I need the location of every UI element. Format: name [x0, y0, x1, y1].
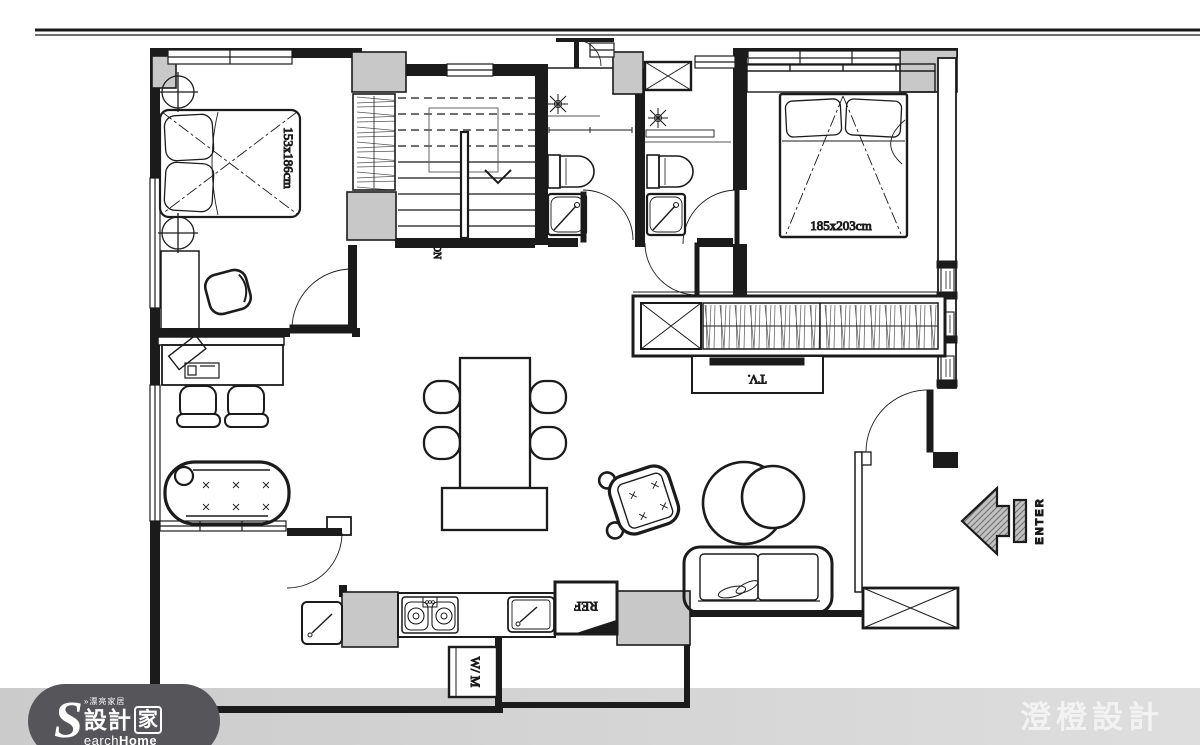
window-bedroom1-top — [168, 50, 292, 64]
designer-watermark: 澄橙設計 — [1020, 692, 1164, 737]
stair-handrail — [461, 132, 468, 238]
stairs-down-label: DN — [431, 245, 442, 259]
window-stair-top — [447, 64, 493, 76]
bed-185x203: 185x203cm — [780, 94, 907, 237]
window-vestibule — [590, 43, 614, 57]
logo-en-text: earchHome — [84, 734, 162, 745]
stairwell: DN — [398, 98, 535, 259]
sofa — [684, 547, 832, 613]
floorplan-page: DN 153x186cm — [0, 0, 1200, 745]
window-bath2-top — [695, 56, 735, 68]
logo-cn-boxed-char: 家 — [134, 706, 162, 734]
shower-tray — [548, 194, 586, 235]
bathroom-2 — [645, 108, 731, 295]
refrigerator: REF — [555, 582, 617, 634]
study-nook — [158, 335, 284, 427]
toilet — [647, 155, 693, 188]
closet-hanger-section — [703, 303, 938, 349]
shower-head-icon — [648, 108, 668, 128]
tv-label: TV. — [748, 372, 767, 387]
small-sink-left — [302, 602, 342, 644]
desk — [162, 345, 283, 385]
entry-door — [866, 390, 933, 452]
bathroom1-door — [581, 190, 633, 242]
floor-plan-drawing: DN 153x186cm — [0, 0, 1200, 745]
logo-initial: S — [54, 699, 83, 743]
shower-tray — [647, 194, 685, 235]
window-left-wall-2 — [150, 385, 160, 521]
window-bedroom2-top — [748, 51, 900, 65]
bedroom1-chair — [203, 267, 254, 317]
logo-en-rest: earch — [84, 733, 119, 745]
logo-tagline: »漂亮家居 — [84, 697, 162, 706]
sideboard — [442, 488, 547, 530]
planter-xbox — [863, 588, 958, 628]
fridge-label: REF — [574, 599, 598, 614]
dining-chair — [530, 427, 566, 459]
dining-table — [460, 358, 530, 488]
entry: ENTER — [855, 390, 1046, 628]
armchair — [589, 454, 682, 542]
shelf — [646, 130, 714, 137]
dining-chair — [424, 381, 460, 413]
coffee-tables — [703, 462, 804, 544]
desk-chair — [177, 386, 220, 427]
desk-chair — [225, 386, 268, 427]
round-table-small — [742, 466, 804, 528]
tv-cabinet: TV. — [692, 356, 823, 393]
entry-screen-panel — [855, 452, 871, 592]
dining-chair — [530, 381, 566, 413]
bed-153x186: 153x186cm — [160, 110, 300, 217]
washer-label: W/ M — [468, 657, 483, 688]
bedroom1-door — [290, 269, 352, 333]
dining-set — [424, 358, 566, 530]
enter-label: ENTER — [1034, 497, 1046, 544]
sofa-leaf-decor — [717, 578, 759, 600]
towel-bar — [549, 127, 632, 133]
nightstand-light-icon — [158, 213, 198, 253]
chaise-lounge — [165, 462, 289, 524]
searchhome-logo: S »漂亮家居 設計 家 earchHome — [28, 684, 220, 745]
bed1-dimension-label: 153x186cm — [281, 127, 296, 188]
shower-head-icon — [548, 94, 568, 114]
window-left-wall-1 — [150, 178, 160, 308]
washing-machine: W/ M — [449, 647, 497, 697]
bedroom2-door — [683, 190, 739, 244]
wardrobe-bedroom1 — [353, 94, 395, 190]
logo-cn-text: 設計 — [84, 708, 132, 732]
bed2-dimension-label: 185x203cm — [810, 218, 871, 233]
duct-shaft — [645, 62, 691, 90]
site-boundary-line — [35, 30, 1200, 35]
toilet — [548, 155, 594, 188]
bedroom-2: 185x203cm — [683, 64, 935, 244]
balcony-door — [287, 528, 342, 588]
enter-arrow-icon: ENTER — [962, 488, 1046, 554]
closet: TV. — [633, 292, 945, 393]
bathroom2-door — [645, 243, 699, 295]
bathroom-1 — [548, 94, 633, 242]
dining-chair — [424, 427, 460, 459]
desk-device — [185, 363, 219, 378]
bedroom1-cabinet — [161, 251, 199, 329]
logo-en-bold: Home — [119, 733, 157, 745]
